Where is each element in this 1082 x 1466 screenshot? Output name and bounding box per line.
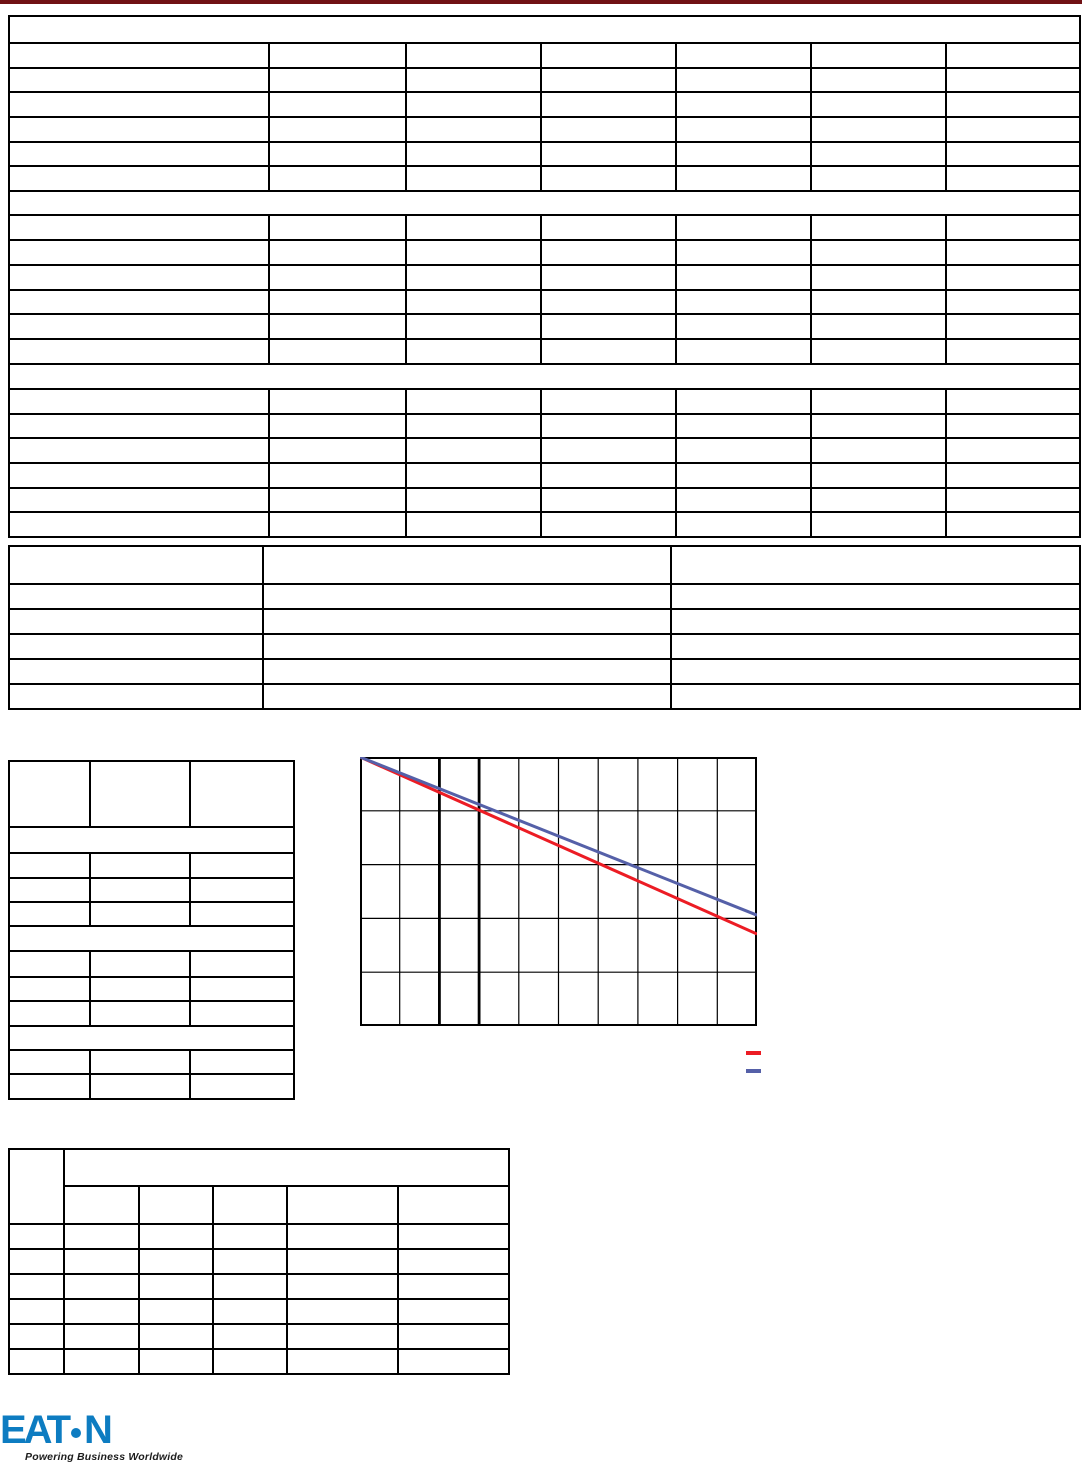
- table-cell: [811, 166, 946, 191]
- table-cell: [406, 314, 541, 339]
- table-cell: [541, 438, 676, 463]
- table-cell: [269, 414, 406, 439]
- table-row: [9, 634, 1080, 659]
- table-cell: [9, 488, 269, 513]
- table-row: [9, 68, 1080, 93]
- table-cell: [541, 240, 676, 265]
- table-cell: [9, 761, 90, 827]
- table-cell: [9, 166, 269, 191]
- table-cell: [811, 314, 946, 339]
- table-row: [9, 977, 294, 1001]
- table-row: [9, 584, 1080, 609]
- table-cell: [263, 609, 671, 634]
- table-row: [9, 389, 1080, 414]
- table-cell: [541, 142, 676, 167]
- table-cell: [811, 463, 946, 488]
- table-cell: [541, 68, 676, 93]
- table-row: [9, 827, 294, 853]
- table-cell: [269, 265, 406, 290]
- table-cell: [9, 684, 263, 709]
- section-band-cell: [9, 926, 294, 951]
- table-cell: [671, 546, 1080, 584]
- table-row: [9, 1324, 509, 1349]
- table-row: [9, 853, 294, 878]
- table-cell: [287, 1186, 398, 1224]
- table-row: [9, 314, 1080, 339]
- table-cell: [269, 314, 406, 339]
- table-cell: [287, 1224, 398, 1249]
- table-cell: [90, 1001, 190, 1026]
- table-cell: [671, 609, 1080, 634]
- table-cell: [190, 1050, 294, 1074]
- table-row: [9, 951, 294, 977]
- table-cell: [406, 166, 541, 191]
- table-cell: [287, 1324, 398, 1349]
- table-cell: [676, 166, 811, 191]
- legend-red-swatch: [746, 1051, 761, 1055]
- table-cell: [406, 117, 541, 142]
- table-cell: [9, 215, 269, 240]
- table-cell: [287, 1299, 398, 1324]
- table-cell: [811, 290, 946, 315]
- table-cell: [269, 463, 406, 488]
- table-cell: [9, 977, 90, 1001]
- eaton-logo: EAT N Powering Business Worldwide: [0, 1412, 220, 1463]
- table-cell: [139, 1274, 213, 1299]
- table-cell: [90, 1050, 190, 1074]
- table-cell: [946, 463, 1080, 488]
- table-cell: [946, 314, 1080, 339]
- table-row: [9, 438, 1080, 463]
- table-row: [9, 488, 1080, 513]
- table-cell: [9, 290, 269, 315]
- table-cell: [269, 488, 406, 513]
- table-cell: [946, 142, 1080, 167]
- table-cell: [269, 92, 406, 117]
- table-cell: [139, 1249, 213, 1274]
- table-cell: [9, 951, 90, 977]
- table-cell: [9, 414, 269, 439]
- table-cell: [263, 634, 671, 659]
- table-cell: [946, 68, 1080, 93]
- spec-table-top: [8, 15, 1081, 538]
- table-cell: [406, 463, 541, 488]
- table-cell: [64, 1249, 139, 1274]
- table-cell: [541, 339, 676, 364]
- table-row: [9, 609, 1080, 634]
- table-cell: [139, 1324, 213, 1349]
- table-cell: [671, 659, 1080, 684]
- table-cell: [541, 166, 676, 191]
- table-cell: [9, 1001, 90, 1026]
- table-cell: [811, 265, 946, 290]
- table-cell: [269, 389, 406, 414]
- table-cell: [139, 1349, 213, 1374]
- eaton-wordmark: EAT N: [0, 1412, 220, 1448]
- table-cell: [398, 1299, 509, 1324]
- table-cell: [946, 92, 1080, 117]
- table-row: [9, 902, 294, 926]
- table-cell: [541, 314, 676, 339]
- table-cell: [263, 584, 671, 609]
- table-row: [9, 166, 1080, 191]
- section-band-cell: [9, 16, 1080, 43]
- table-cell: [811, 438, 946, 463]
- table-row: [9, 1074, 294, 1099]
- top-accent-bar: [0, 0, 1082, 4]
- section-band-cell: [9, 364, 1080, 389]
- table-row: [9, 142, 1080, 167]
- table-row: [9, 240, 1080, 265]
- derating-chart-svg: [360, 757, 757, 1026]
- table-cell: [9, 1224, 64, 1249]
- section-band-cell: [9, 827, 294, 853]
- table-cell: [676, 142, 811, 167]
- table-cell: [9, 1249, 64, 1274]
- table-cell: [9, 339, 269, 364]
- table-cell: [406, 438, 541, 463]
- table-cell: [811, 43, 946, 68]
- table-cell: [406, 512, 541, 537]
- table-cell: [269, 68, 406, 93]
- table-row: [9, 878, 294, 902]
- table-cell: [676, 463, 811, 488]
- table-cell: [9, 389, 269, 414]
- table-row: [9, 191, 1080, 215]
- table-cell: [269, 512, 406, 537]
- table-row: [9, 761, 294, 827]
- table-cell: [811, 117, 946, 142]
- section-band-cell: [64, 1149, 509, 1186]
- table-cell: [9, 438, 269, 463]
- table-row: [9, 43, 1080, 68]
- table-cell: [9, 1299, 64, 1324]
- table-row: [9, 1001, 294, 1026]
- table-cell: [213, 1299, 287, 1324]
- table-cell: [90, 902, 190, 926]
- table-cell: [811, 142, 946, 167]
- table-cell: [946, 389, 1080, 414]
- table-cell: [671, 634, 1080, 659]
- table-cell: [287, 1274, 398, 1299]
- table-cell: [9, 902, 90, 926]
- table-cell: [811, 414, 946, 439]
- table-row: [9, 1026, 294, 1050]
- table-row: [9, 1224, 509, 1249]
- wordmark-text-right: N: [84, 1412, 110, 1448]
- table-row: [9, 414, 1080, 439]
- table-cell: [406, 240, 541, 265]
- table-cell: [213, 1274, 287, 1299]
- table-cell: [9, 240, 269, 265]
- table-cell: [946, 512, 1080, 537]
- table-cell: [190, 1074, 294, 1099]
- table-cell: [269, 339, 406, 364]
- table-cell: [9, 43, 269, 68]
- table-row: [9, 117, 1080, 142]
- table-cell: [190, 761, 294, 827]
- table-cell: [269, 166, 406, 191]
- logo-tagline: Powering Business Worldwide: [25, 1451, 220, 1463]
- table-cell: [398, 1274, 509, 1299]
- table-cell: [269, 438, 406, 463]
- table-row: [9, 364, 1080, 389]
- table-row: [9, 1274, 509, 1299]
- table-cell: [406, 92, 541, 117]
- table-cell: [190, 951, 294, 977]
- table-row: [9, 684, 1080, 709]
- table-cell: [9, 463, 269, 488]
- table-cell: [190, 878, 294, 902]
- table-cell: [139, 1186, 213, 1224]
- table-cell: [406, 339, 541, 364]
- table-cell: [676, 512, 811, 537]
- table-cell: [671, 584, 1080, 609]
- table-cell: [406, 414, 541, 439]
- table-cell: [406, 488, 541, 513]
- table-cell: [9, 1274, 64, 1299]
- table-row: [9, 1249, 509, 1274]
- legend-blue-swatch: [746, 1069, 761, 1073]
- table-cell: [946, 488, 1080, 513]
- table-row: [9, 463, 1080, 488]
- table-cell: [946, 43, 1080, 68]
- table-cell: [9, 546, 263, 584]
- table-cell: [64, 1324, 139, 1349]
- table-cell: [676, 290, 811, 315]
- table-cell: [9, 142, 269, 167]
- table-cell: [90, 761, 190, 827]
- table-cell: [9, 853, 90, 878]
- table-cell: [9, 265, 269, 290]
- table-cell: [9, 68, 269, 93]
- table-cell: [269, 215, 406, 240]
- table-cell: [676, 414, 811, 439]
- table-cell: [406, 68, 541, 93]
- table-cell: [676, 43, 811, 68]
- table-cell: [811, 339, 946, 364]
- table-cell: [406, 265, 541, 290]
- table-cell: [676, 215, 811, 240]
- table-cell: [90, 1074, 190, 1099]
- parameter-table: [8, 545, 1081, 710]
- table-cell: [287, 1249, 398, 1274]
- table-cell: [811, 488, 946, 513]
- datasheet-page: EAT N Powering Business Worldwide: [0, 0, 1082, 1466]
- table-cell: [9, 1050, 90, 1074]
- table-row: [9, 512, 1080, 537]
- table-cell: [398, 1186, 509, 1224]
- table-row: [9, 1186, 509, 1224]
- table-row: [9, 659, 1080, 684]
- ratings-table-small: [8, 760, 295, 1100]
- table-cell: [541, 389, 676, 414]
- table-cell: [139, 1299, 213, 1324]
- section-band-cell: [9, 191, 1080, 215]
- table-cell: [9, 584, 263, 609]
- table-cell: [811, 215, 946, 240]
- table-cell: [287, 1349, 398, 1374]
- table-cell: [946, 290, 1080, 315]
- table-cell: [213, 1224, 287, 1249]
- table-row: [9, 290, 1080, 315]
- table-cell: [811, 68, 946, 93]
- table-cell: [676, 314, 811, 339]
- table-cell: [398, 1249, 509, 1274]
- table-cell: [139, 1224, 213, 1249]
- table-cell: [811, 389, 946, 414]
- table-row: [9, 339, 1080, 364]
- table-cell: [190, 902, 294, 926]
- table-cell: [541, 215, 676, 240]
- table-cell: [406, 142, 541, 167]
- table-row: [9, 546, 1080, 584]
- table-row: [9, 16, 1080, 43]
- table-cell: [406, 215, 541, 240]
- table-cell: [90, 853, 190, 878]
- table-cell: [269, 142, 406, 167]
- table-cell: [406, 290, 541, 315]
- table-cell: [811, 240, 946, 265]
- table-cell: [269, 117, 406, 142]
- table-cell: [671, 684, 1080, 709]
- table-cell: [213, 1324, 287, 1349]
- table-cell: [64, 1186, 139, 1224]
- table-cell: [541, 414, 676, 439]
- table-cell: [64, 1349, 139, 1374]
- table-cell: [9, 1074, 90, 1099]
- table-cell: [9, 92, 269, 117]
- table-cell: [398, 1349, 509, 1374]
- table-cell: [541, 92, 676, 117]
- table-cell: [946, 166, 1080, 191]
- table-cell: [190, 853, 294, 878]
- table-cell: [9, 512, 269, 537]
- table-cell: [406, 389, 541, 414]
- table-cell: [263, 659, 671, 684]
- table-cell: [676, 438, 811, 463]
- table-cell: [269, 240, 406, 265]
- table-cell: [9, 659, 263, 684]
- table-cell: [541, 117, 676, 142]
- table-cell: [676, 68, 811, 93]
- table-cell: [190, 1001, 294, 1026]
- logo-dot-icon: [71, 1428, 81, 1438]
- table-cell: [811, 92, 946, 117]
- table-cell: [213, 1349, 287, 1374]
- table-cell: [676, 389, 811, 414]
- table-cell: [946, 240, 1080, 265]
- table-cell: [9, 314, 269, 339]
- bottom-selection-table: [8, 1148, 510, 1375]
- table-cell: [213, 1186, 287, 1224]
- table-cell: [269, 290, 406, 315]
- derating-chart: [360, 757, 757, 1026]
- table-cell: [90, 878, 190, 902]
- table-row: [9, 1349, 509, 1374]
- table-row: [9, 926, 294, 951]
- table-cell: [811, 512, 946, 537]
- table-cell: [676, 488, 811, 513]
- table-cell: [946, 414, 1080, 439]
- table-cell: [676, 117, 811, 142]
- table-cell: [946, 339, 1080, 364]
- table-cell: [541, 43, 676, 68]
- table-row: [9, 1149, 509, 1186]
- table-cell: [541, 265, 676, 290]
- table-cell: [676, 265, 811, 290]
- table-row: [9, 92, 1080, 117]
- table-cell: [398, 1324, 509, 1349]
- table-cell: [541, 512, 676, 537]
- table-row: [9, 215, 1080, 240]
- table-cell: [946, 438, 1080, 463]
- table-cell: [946, 117, 1080, 142]
- table-cell: [90, 977, 190, 1001]
- table-cell: [541, 290, 676, 315]
- table-cell: [263, 546, 671, 584]
- table-cell: [9, 1324, 64, 1349]
- table-cell: [676, 92, 811, 117]
- table-row: [9, 1299, 509, 1324]
- table-cell: [213, 1249, 287, 1274]
- table-cell: [946, 215, 1080, 240]
- table-cell: [541, 488, 676, 513]
- table-row: [9, 1050, 294, 1074]
- table-cell: [9, 1349, 64, 1374]
- table-cell: [190, 977, 294, 1001]
- table-cell: [398, 1224, 509, 1249]
- table-cell: [676, 240, 811, 265]
- table-cell: [9, 117, 269, 142]
- table-cell: [9, 609, 263, 634]
- table-cell: [64, 1224, 139, 1249]
- table-cell: [90, 951, 190, 977]
- table-row: [9, 265, 1080, 290]
- table-cell: [9, 634, 263, 659]
- table-cell: [64, 1274, 139, 1299]
- table-cell: [9, 878, 90, 902]
- table-cell: [64, 1299, 139, 1324]
- table-cell: [9, 1149, 64, 1224]
- section-band-cell: [9, 1026, 294, 1050]
- table-cell: [269, 43, 406, 68]
- table-cell: [406, 43, 541, 68]
- table-cell: [946, 265, 1080, 290]
- table-cell: [676, 339, 811, 364]
- wordmark-text-left: EAT: [0, 1412, 68, 1448]
- table-cell: [263, 684, 671, 709]
- table-cell: [541, 463, 676, 488]
